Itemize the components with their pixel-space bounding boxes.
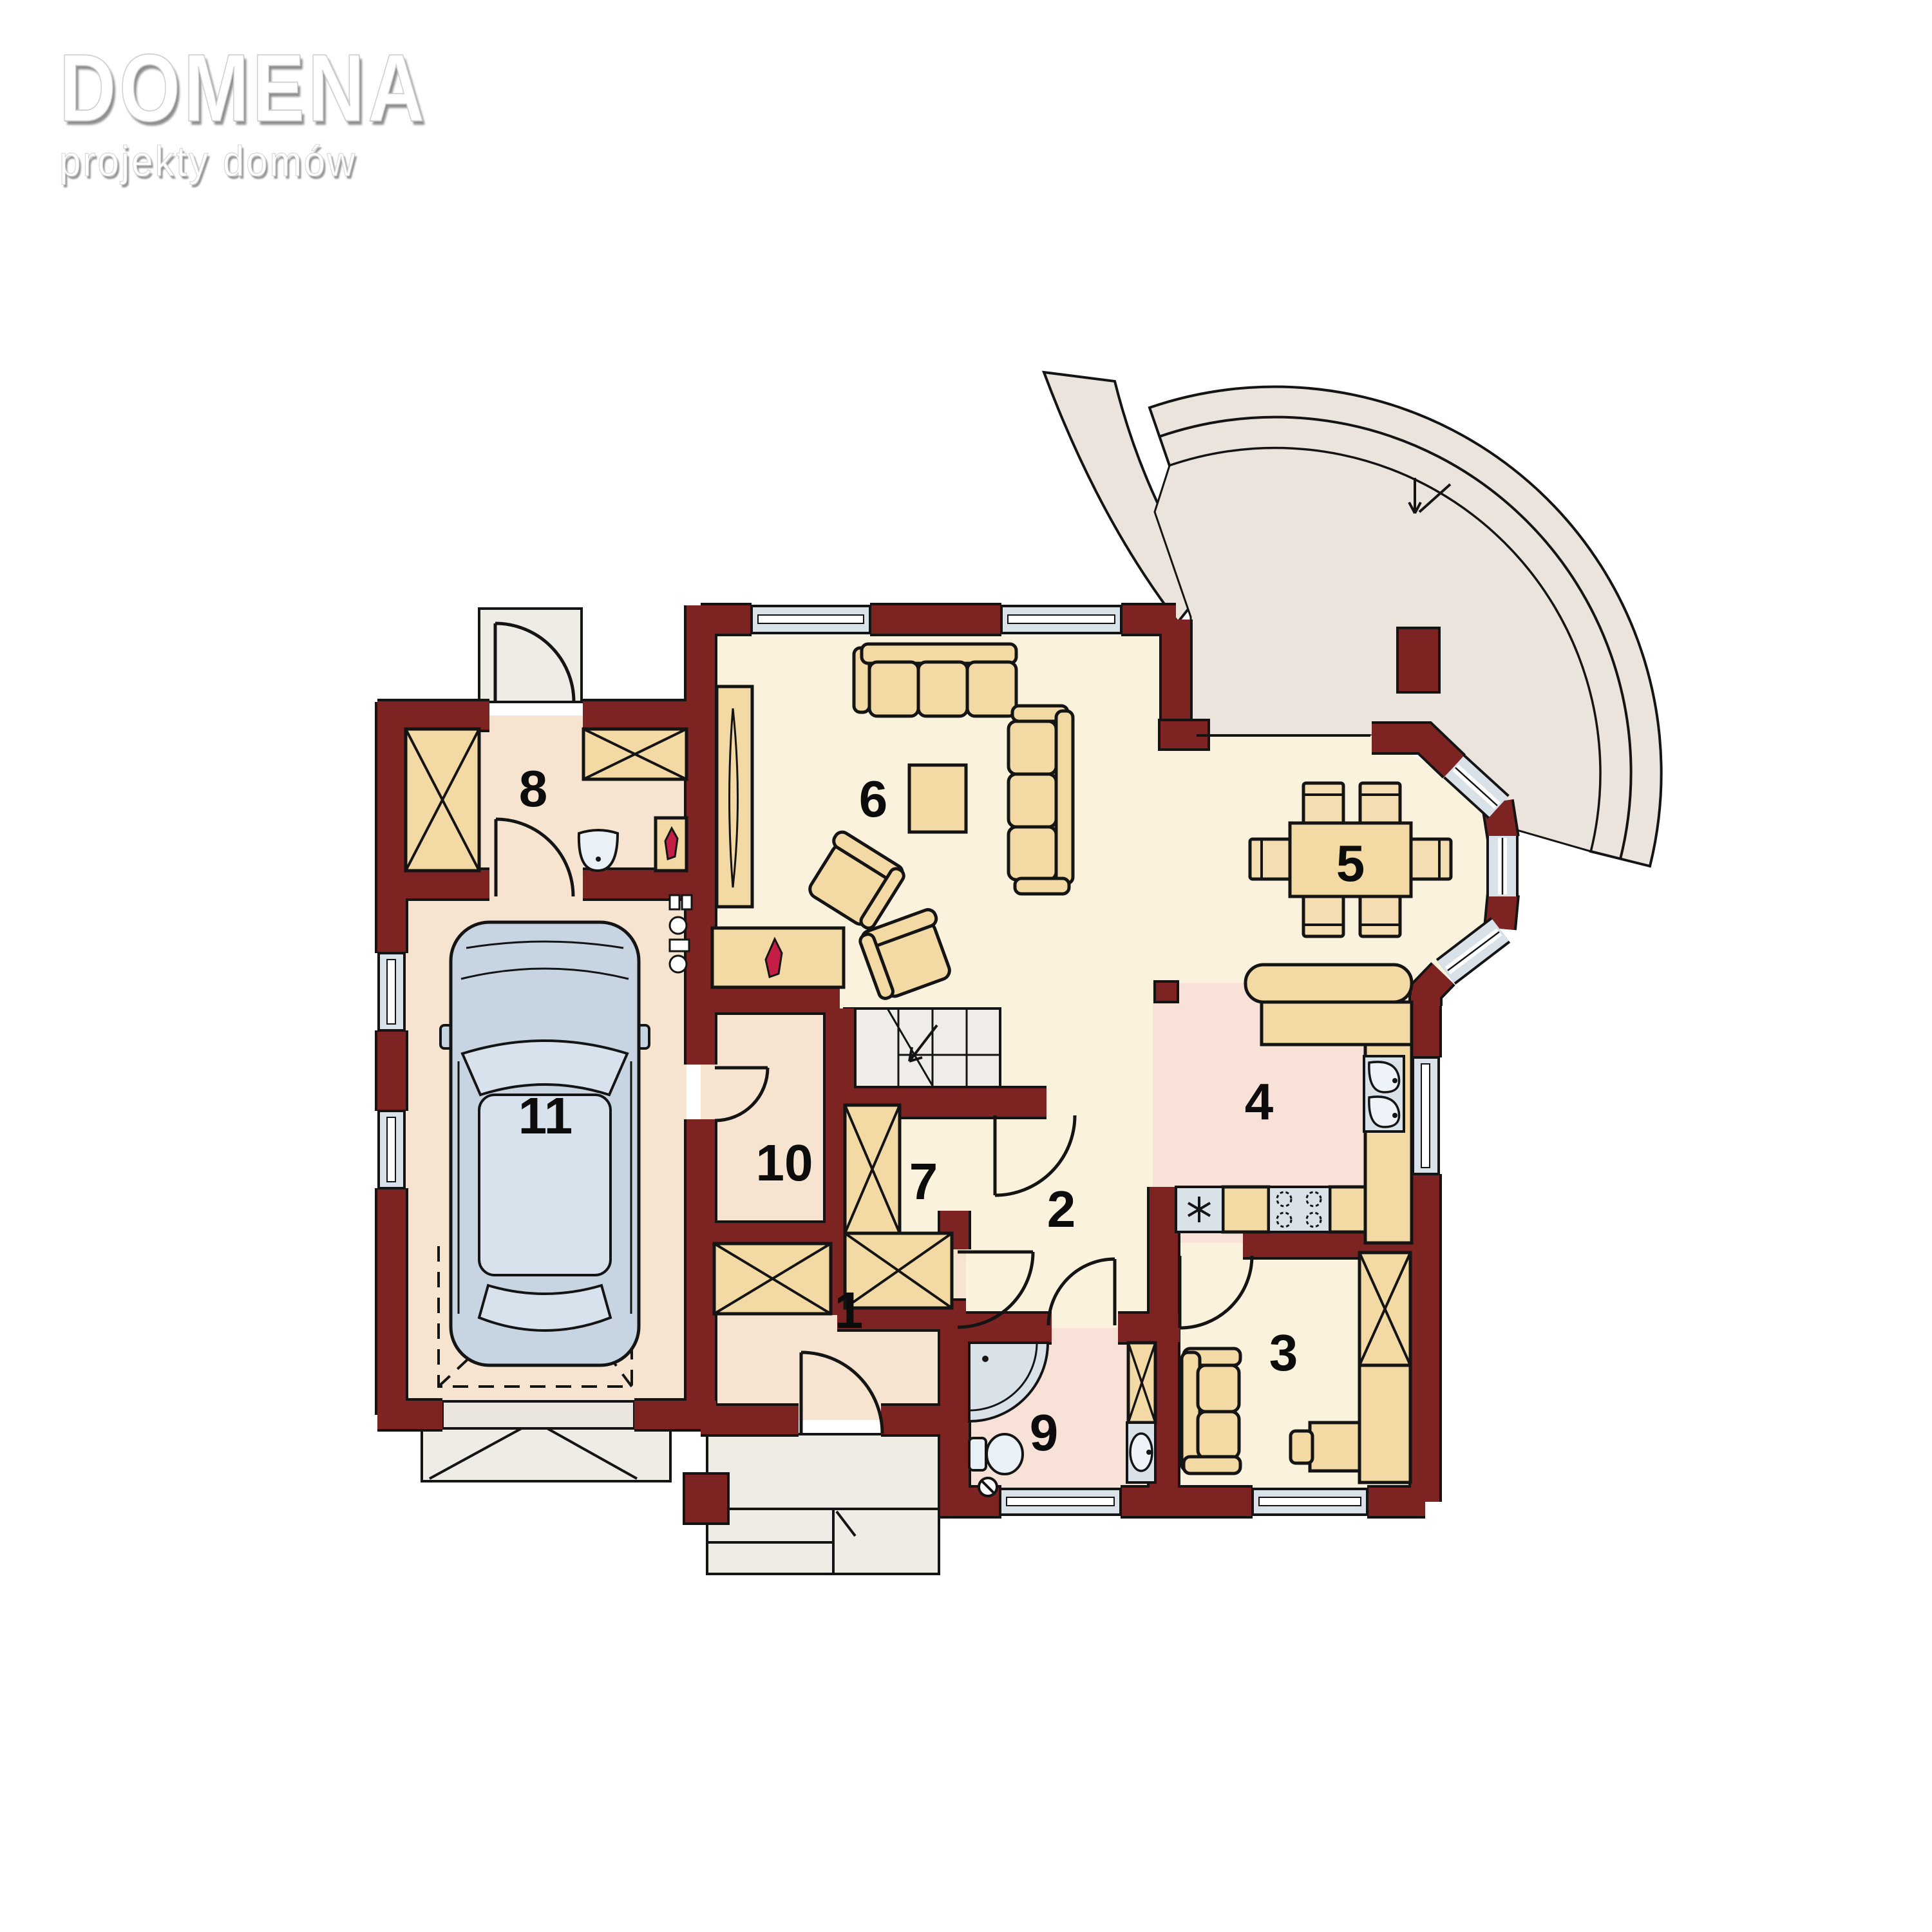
wardrobe-room1 <box>714 1244 831 1314</box>
dining-chair-left <box>1250 839 1291 879</box>
sofa-room3 <box>1182 1349 1240 1473</box>
kitchen-sink <box>1364 1056 1404 1132</box>
kitchen-counter-bottom-left <box>1223 1187 1269 1232</box>
dining-chair-bottom-left <box>1303 895 1343 936</box>
floor-plan-canvas: 1 2 3 4 5 6 7 8 9 10 11 <box>0 0 1932 1932</box>
tv-cabinet <box>717 687 752 907</box>
toilet <box>969 1434 1023 1474</box>
stove <box>1269 1187 1330 1232</box>
terrace-pillar <box>1397 628 1439 692</box>
window-garage-upper <box>379 953 404 1030</box>
floor-room10 <box>701 998 840 1237</box>
kitchen-counter-top <box>1245 965 1412 1002</box>
room-label-10: 10 <box>756 1134 813 1191</box>
fridge <box>1176 1187 1223 1232</box>
floor-drain-icon <box>979 1478 997 1496</box>
room-label-4: 4 <box>1245 1073 1274 1130</box>
room-label-1: 1 <box>835 1282 864 1339</box>
garage-car <box>439 922 649 1387</box>
room-label-5: 5 <box>1336 835 1365 892</box>
window-kitchen <box>1413 1057 1439 1174</box>
wardrobe-room3 <box>1359 1253 1410 1482</box>
room-label-8: 8 <box>519 760 548 817</box>
kitchen-corner-pillar <box>1155 981 1178 1002</box>
dining-chair-top-left <box>1303 783 1343 824</box>
window-garage-lower <box>379 1111 404 1188</box>
kitchen-counter-bottom-right <box>1330 1187 1365 1232</box>
room-label-11: 11 <box>518 1087 573 1144</box>
sofa-right <box>1009 706 1073 894</box>
window-living-right <box>1001 606 1121 633</box>
desk <box>1310 1423 1359 1471</box>
room-label-9: 9 <box>1030 1404 1059 1461</box>
bathroom-cabinet <box>1128 1343 1155 1423</box>
window-living-left <box>752 606 870 633</box>
garage-door <box>442 1401 634 1428</box>
window-room3 <box>1253 1489 1367 1515</box>
room-label-2: 2 <box>1047 1180 1076 1238</box>
bathroom-sink <box>1127 1423 1155 1482</box>
sofa-top <box>854 644 1016 716</box>
room-label-6: 6 <box>859 770 888 828</box>
dining-chair-right <box>1410 839 1451 879</box>
dining-chair-top-right <box>1360 783 1400 824</box>
desk-chair <box>1291 1431 1312 1463</box>
window-room9 <box>1000 1489 1121 1515</box>
room8-sink <box>579 830 618 871</box>
dining-chair-bottom-right <box>1360 895 1400 936</box>
fireplace <box>712 928 844 987</box>
front-porch-steps <box>684 1434 939 1574</box>
wardrobe-room7-vertical <box>845 1105 900 1233</box>
porch-pillar <box>684 1473 728 1524</box>
room-label-3: 3 <box>1269 1324 1298 1381</box>
kitchen-counter-second <box>1262 1002 1412 1045</box>
coffee-table <box>909 765 966 832</box>
room-label-7: 7 <box>909 1153 938 1210</box>
